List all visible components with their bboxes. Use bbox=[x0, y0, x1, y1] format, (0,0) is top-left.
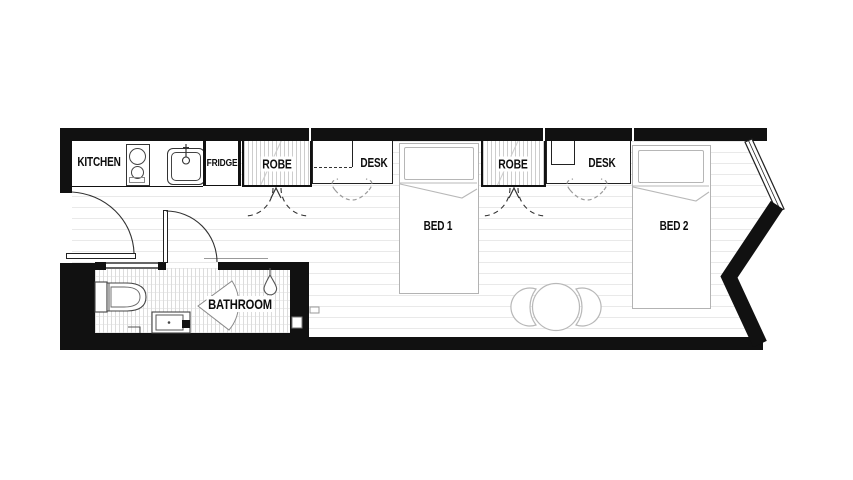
desk-2-label: DESK bbox=[588, 156, 615, 170]
vanity-basin bbox=[152, 312, 190, 333]
entry-door-swing bbox=[72, 192, 134, 253]
bathroom-label: BATHROOM bbox=[206, 296, 273, 312]
fridge-label: FRIDGE bbox=[207, 157, 238, 169]
window-glass-line bbox=[749, 141, 781, 211]
power-point bbox=[310, 307, 319, 313]
sink-tap bbox=[183, 144, 190, 164]
bathroom-door-swing bbox=[166, 211, 217, 262]
toilet-roll-holder bbox=[128, 327, 140, 333]
dining-setting bbox=[511, 284, 601, 331]
bed-2-label: BED 2 bbox=[660, 219, 689, 233]
dining-table bbox=[533, 284, 580, 331]
robe-2-label: ROBE bbox=[497, 157, 530, 172]
desk-chair-2 bbox=[567, 179, 607, 200]
bed-2-sheet-fold bbox=[633, 186, 709, 201]
bed-1-label: BED 1 bbox=[424, 219, 453, 233]
shower-head-icon bbox=[264, 268, 277, 295]
desk-chair-1 bbox=[332, 179, 372, 200]
plan-linework bbox=[0, 0, 853, 480]
robe-1-doors-swing bbox=[245, 188, 309, 216]
angled-wall bbox=[729, 205, 777, 344]
bed-1-sheet-fold bbox=[400, 183, 477, 198]
kitchen-label: KITCHEN bbox=[77, 155, 120, 169]
desk-1-label: DESK bbox=[360, 156, 387, 170]
toilet bbox=[95, 282, 146, 312]
basin-tap bbox=[182, 320, 190, 328]
robe-2-doors-swing bbox=[482, 188, 546, 216]
robe-1-label: ROBE bbox=[261, 157, 294, 172]
wall-niche bbox=[292, 317, 302, 328]
floor-plan: KITCHEN FRIDGE ROBE DESK ROBE DESK BED 1… bbox=[0, 0, 853, 480]
